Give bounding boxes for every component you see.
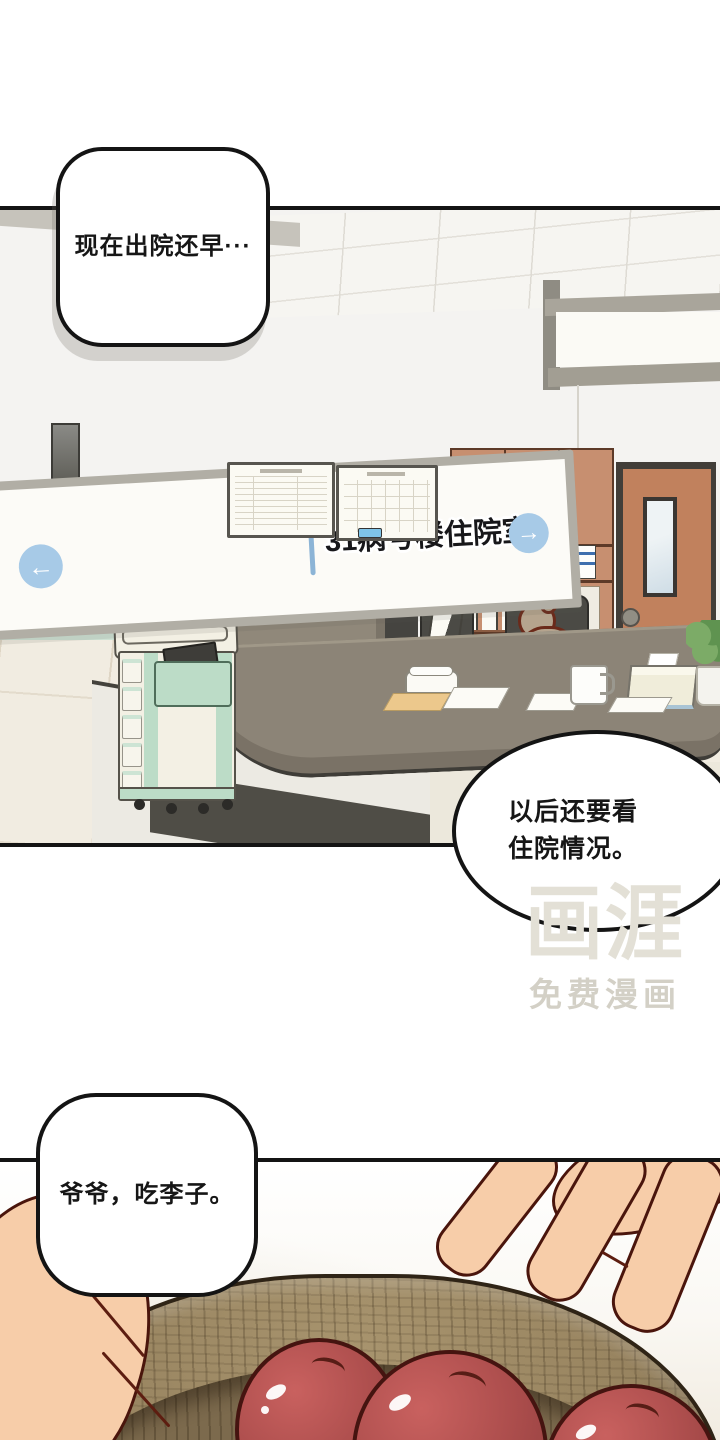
cart-caster [222, 799, 233, 810]
whiteboard-calendar-grid [344, 480, 430, 532]
whiteboard-list-grid [235, 476, 327, 530]
speech-text: 现在出院还早··· [75, 229, 252, 265]
whiteboard-list [227, 462, 335, 538]
medical-cart [112, 615, 238, 815]
watermark: 画涯 免费漫画 [498, 884, 712, 1016]
cart-base-band [120, 787, 234, 799]
cart-drawer [122, 659, 142, 683]
desk-papers-1 [442, 687, 510, 709]
cart-drawer [122, 743, 142, 767]
cart-drawer [122, 687, 142, 711]
cart-caster [198, 803, 209, 814]
right-hand-knuckle-line [601, 1251, 628, 1269]
plum-crease [446, 1368, 488, 1399]
whiteboard-calendar-title [367, 472, 405, 476]
plant-leaves [686, 620, 720, 672]
manila-folder [383, 693, 451, 711]
cart-caster [166, 803, 177, 814]
plum-crease [623, 1400, 661, 1428]
cart-drawers [120, 655, 144, 795]
speech-line-1: 以后还要看 [508, 794, 638, 832]
plum-highlight [386, 1391, 413, 1414]
plant-pot [696, 666, 720, 706]
whiteboard-eraser [358, 528, 382, 538]
telephone-handset [409, 666, 453, 676]
plum-highlight-dot [261, 1406, 269, 1414]
cart-caster [134, 799, 145, 810]
door-knob [621, 608, 640, 627]
comic-page: ← 31病号楼住院室 → [0, 0, 720, 1440]
whiteboard-list-title [260, 469, 302, 473]
speech-bubble-plums: 爷爷，吃李子。 [36, 1093, 258, 1297]
ceiling-light-panel [556, 312, 720, 367]
cart-basket [154, 661, 232, 707]
speech-line-2: 住院情况。 [508, 831, 638, 869]
plum-highlight [573, 1422, 598, 1440]
mug-handle [600, 673, 615, 695]
speech-bubble-discharge: 现在出院还早··· [56, 147, 270, 347]
left-arrow-icon: ← [18, 543, 64, 589]
plum-highlight [263, 1381, 288, 1402]
watermark-logo: 画涯 [498, 882, 712, 964]
speech-text: 爷爷，吃李子。 [60, 1177, 235, 1213]
cart-drawer [122, 715, 142, 739]
watermark-tagline: 免费漫画 [498, 968, 712, 1016]
door-window [643, 497, 677, 597]
speech-text: 以后还要看 住院情况。 [508, 794, 638, 869]
plum-crease [309, 1354, 347, 1382]
desk-paper-right [607, 697, 672, 713]
whiteboard-calendar [336, 465, 438, 541]
